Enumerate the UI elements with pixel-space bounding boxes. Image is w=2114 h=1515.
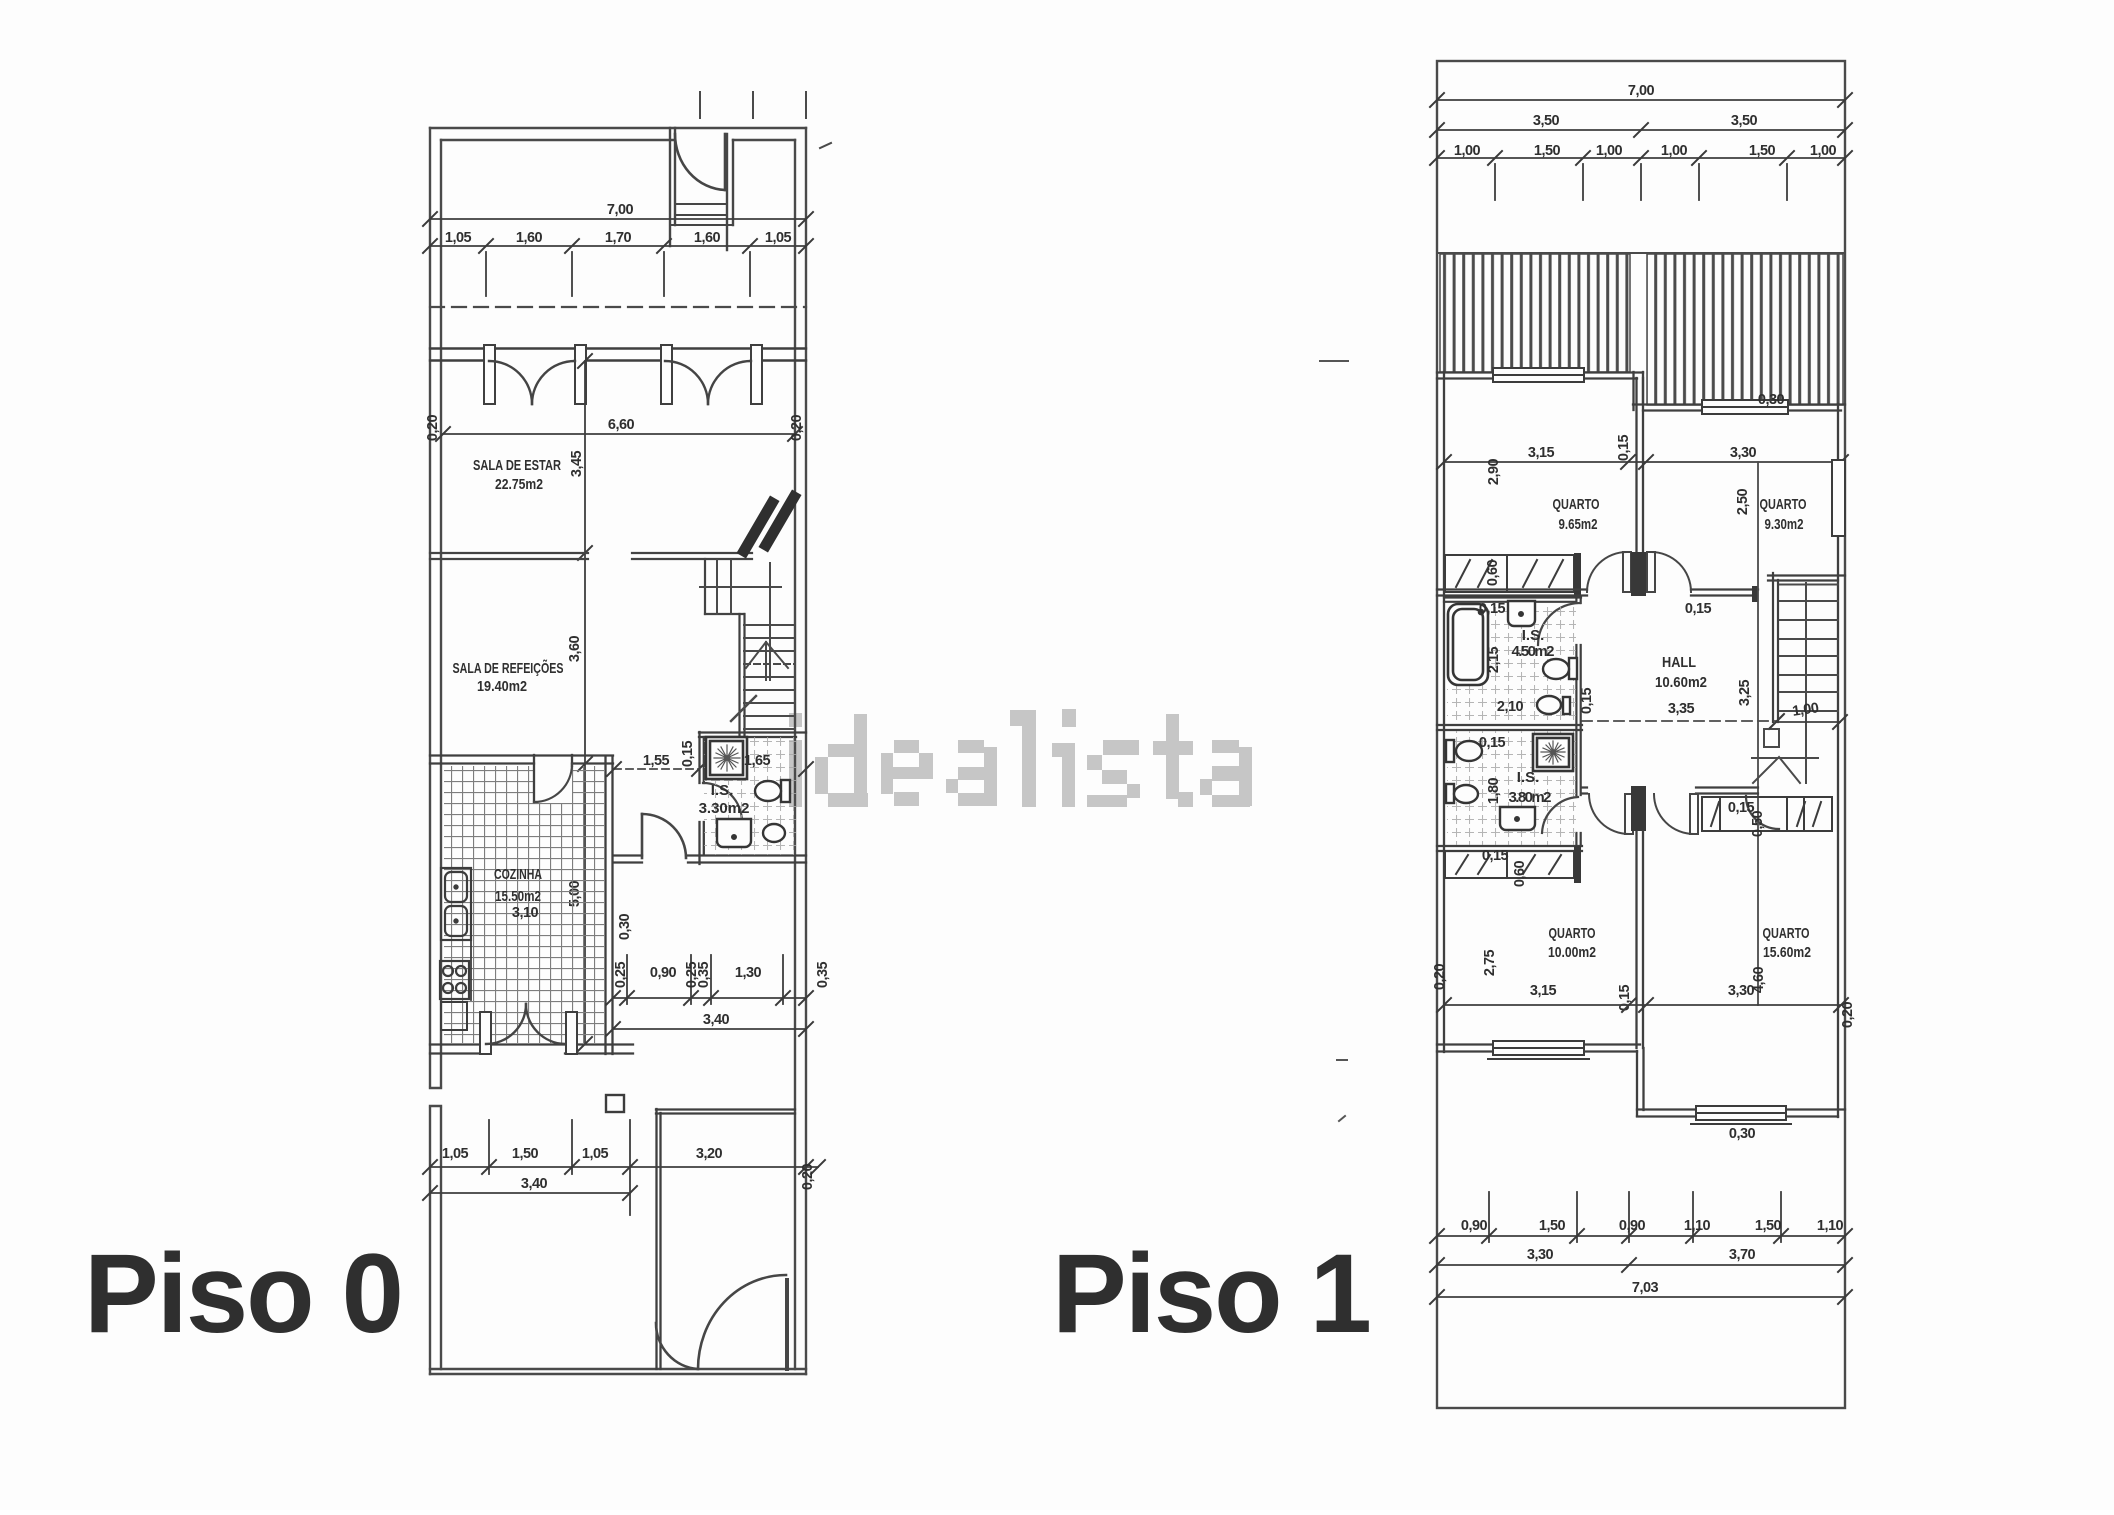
svg-text:10.60m2: 10.60m2 bbox=[1655, 674, 1707, 691]
svg-text:I.S.: I.S. bbox=[1517, 769, 1540, 786]
svg-text:9.30m2: 9.30m2 bbox=[1765, 516, 1804, 533]
svg-text:0,15: 0,15 bbox=[1616, 434, 1632, 461]
svg-text:I.S.: I.S. bbox=[1522, 627, 1545, 644]
svg-text:I.S.: I.S. bbox=[711, 782, 734, 799]
svg-text:0,90: 0,90 bbox=[1619, 1218, 1646, 1234]
svg-text:1,70: 1,70 bbox=[605, 230, 632, 246]
svg-text:1,00: 1,00 bbox=[1810, 143, 1837, 159]
svg-text:QUARTO: QUARTO bbox=[1549, 925, 1596, 942]
svg-text:1,00: 1,00 bbox=[1791, 700, 1820, 720]
svg-text:0,15: 0,15 bbox=[1482, 848, 1509, 864]
svg-text:4.50m2: 4.50m2 bbox=[1512, 643, 1555, 660]
svg-text:1,55: 1,55 bbox=[643, 753, 670, 769]
svg-text:3,35: 3,35 bbox=[1668, 701, 1695, 717]
svg-text:0,35: 0,35 bbox=[815, 961, 831, 988]
svg-text:1,05: 1,05 bbox=[582, 1146, 609, 1162]
svg-text:6,60: 6,60 bbox=[608, 417, 635, 433]
svg-text:0,20: 0,20 bbox=[1840, 1001, 1856, 1028]
svg-text:1,60: 1,60 bbox=[516, 230, 543, 246]
svg-text:1,10: 1,10 bbox=[1817, 1218, 1844, 1234]
svg-text:15.50m2: 15.50m2 bbox=[495, 888, 541, 905]
svg-text:3,25: 3,25 bbox=[1737, 679, 1753, 706]
svg-text:1,50: 1,50 bbox=[1534, 143, 1561, 159]
svg-text:0,90: 0,90 bbox=[1461, 1218, 1488, 1234]
svg-text:3,45: 3,45 bbox=[569, 450, 585, 477]
svg-text:0,50: 0,50 bbox=[1750, 810, 1766, 837]
svg-text:2,90: 2,90 bbox=[1486, 458, 1502, 485]
svg-text:0,60: 0,60 bbox=[1485, 559, 1501, 586]
svg-text:QUARTO: QUARTO bbox=[1553, 496, 1600, 513]
svg-text:3,50: 3,50 bbox=[1731, 113, 1758, 129]
svg-text:3,60: 3,60 bbox=[567, 635, 583, 662]
svg-text:0,30: 0,30 bbox=[617, 913, 633, 940]
svg-text:1,60: 1,60 bbox=[694, 230, 721, 246]
svg-text:0,15: 0,15 bbox=[1685, 601, 1712, 617]
svg-text:Piso 1: Piso 1 bbox=[1052, 1231, 1370, 1356]
svg-text:9.65m2: 9.65m2 bbox=[1559, 516, 1598, 533]
svg-text:Piso 0: Piso 0 bbox=[84, 1231, 402, 1356]
svg-text:QUARTO: QUARTO bbox=[1763, 925, 1810, 942]
svg-text:1,50: 1,50 bbox=[1749, 143, 1776, 159]
svg-text:7,00: 7,00 bbox=[607, 202, 634, 218]
svg-text:1,50: 1,50 bbox=[512, 1146, 539, 1162]
svg-text:1,50: 1,50 bbox=[1755, 1218, 1782, 1234]
svg-text:0,25: 0,25 bbox=[613, 961, 629, 988]
svg-text:1,65: 1,65 bbox=[744, 753, 771, 769]
svg-text:QUARTO: QUARTO bbox=[1760, 496, 1807, 513]
svg-text:1,30: 1,30 bbox=[735, 965, 762, 981]
svg-text:3.30m2: 3.30m2 bbox=[699, 800, 750, 817]
svg-text:19.40m2: 19.40m2 bbox=[477, 678, 527, 695]
svg-text:SALA DE ESTAR: SALA DE ESTAR bbox=[473, 457, 561, 474]
svg-text:0,60: 0,60 bbox=[1512, 860, 1528, 887]
svg-text:3,70: 3,70 bbox=[1729, 1247, 1756, 1263]
svg-text:1,05: 1,05 bbox=[445, 230, 472, 246]
svg-text:3,15: 3,15 bbox=[1528, 445, 1555, 461]
svg-text:3,20: 3,20 bbox=[696, 1146, 723, 1162]
svg-text:0,15: 0,15 bbox=[1479, 735, 1506, 751]
svg-text:0,20: 0,20 bbox=[800, 1163, 816, 1190]
svg-text:2,10: 2,10 bbox=[1497, 699, 1524, 715]
svg-text:2,75: 2,75 bbox=[1482, 949, 1498, 976]
svg-text:3,50: 3,50 bbox=[1533, 113, 1560, 129]
svg-text:3,10: 3,10 bbox=[512, 905, 539, 921]
svg-text:1,50: 1,50 bbox=[1539, 1218, 1566, 1234]
svg-text:7,03: 7,03 bbox=[1632, 1280, 1659, 1296]
svg-text:0,15: 0,15 bbox=[1617, 984, 1633, 1011]
svg-text:0,15: 0,15 bbox=[1479, 601, 1506, 617]
svg-text:0,30: 0,30 bbox=[1758, 392, 1785, 408]
svg-text:0,20: 0,20 bbox=[1432, 963, 1448, 990]
svg-text:0,30: 0,30 bbox=[1729, 1126, 1756, 1142]
svg-text:1,00: 1,00 bbox=[1661, 143, 1688, 159]
svg-text:COZINHA: COZINHA bbox=[494, 866, 542, 883]
svg-text:2,50: 2,50 bbox=[1735, 488, 1751, 515]
svg-text:1,05: 1,05 bbox=[765, 230, 792, 246]
svg-text:3,15: 3,15 bbox=[1530, 983, 1557, 999]
svg-text:SALA DE REFEIÇÕES: SALA DE REFEIÇÕES bbox=[453, 659, 564, 677]
svg-text:1,05: 1,05 bbox=[442, 1146, 469, 1162]
svg-text:3,40: 3,40 bbox=[703, 1012, 730, 1028]
svg-text:HALL: HALL bbox=[1662, 654, 1696, 671]
svg-text:7,00: 7,00 bbox=[1628, 83, 1655, 99]
svg-text:3,30: 3,30 bbox=[1730, 445, 1757, 461]
svg-text:0,20: 0,20 bbox=[789, 414, 805, 441]
svg-text:1,00: 1,00 bbox=[1596, 143, 1623, 159]
svg-text:3,30: 3,30 bbox=[1527, 1247, 1554, 1263]
svg-text:0,90: 0,90 bbox=[650, 965, 677, 981]
svg-text:3.80m2: 3.80m2 bbox=[1509, 789, 1552, 806]
svg-text:1,80: 1,80 bbox=[1486, 777, 1502, 804]
svg-text:0,15: 0,15 bbox=[680, 740, 696, 767]
svg-text:1,00: 1,00 bbox=[1454, 143, 1481, 159]
svg-text:3,40: 3,40 bbox=[521, 1176, 548, 1192]
svg-text:0,20: 0,20 bbox=[425, 414, 441, 441]
svg-text:22.75m2: 22.75m2 bbox=[495, 476, 543, 493]
svg-text:15.60m2: 15.60m2 bbox=[1763, 944, 1811, 961]
svg-text:1,10: 1,10 bbox=[1684, 1218, 1711, 1234]
svg-text:0,35: 0,35 bbox=[696, 961, 712, 988]
svg-text:10.00m2: 10.00m2 bbox=[1548, 944, 1596, 961]
svg-text:2,15: 2,15 bbox=[1486, 646, 1502, 673]
svg-text:4,60: 4,60 bbox=[1751, 966, 1767, 993]
